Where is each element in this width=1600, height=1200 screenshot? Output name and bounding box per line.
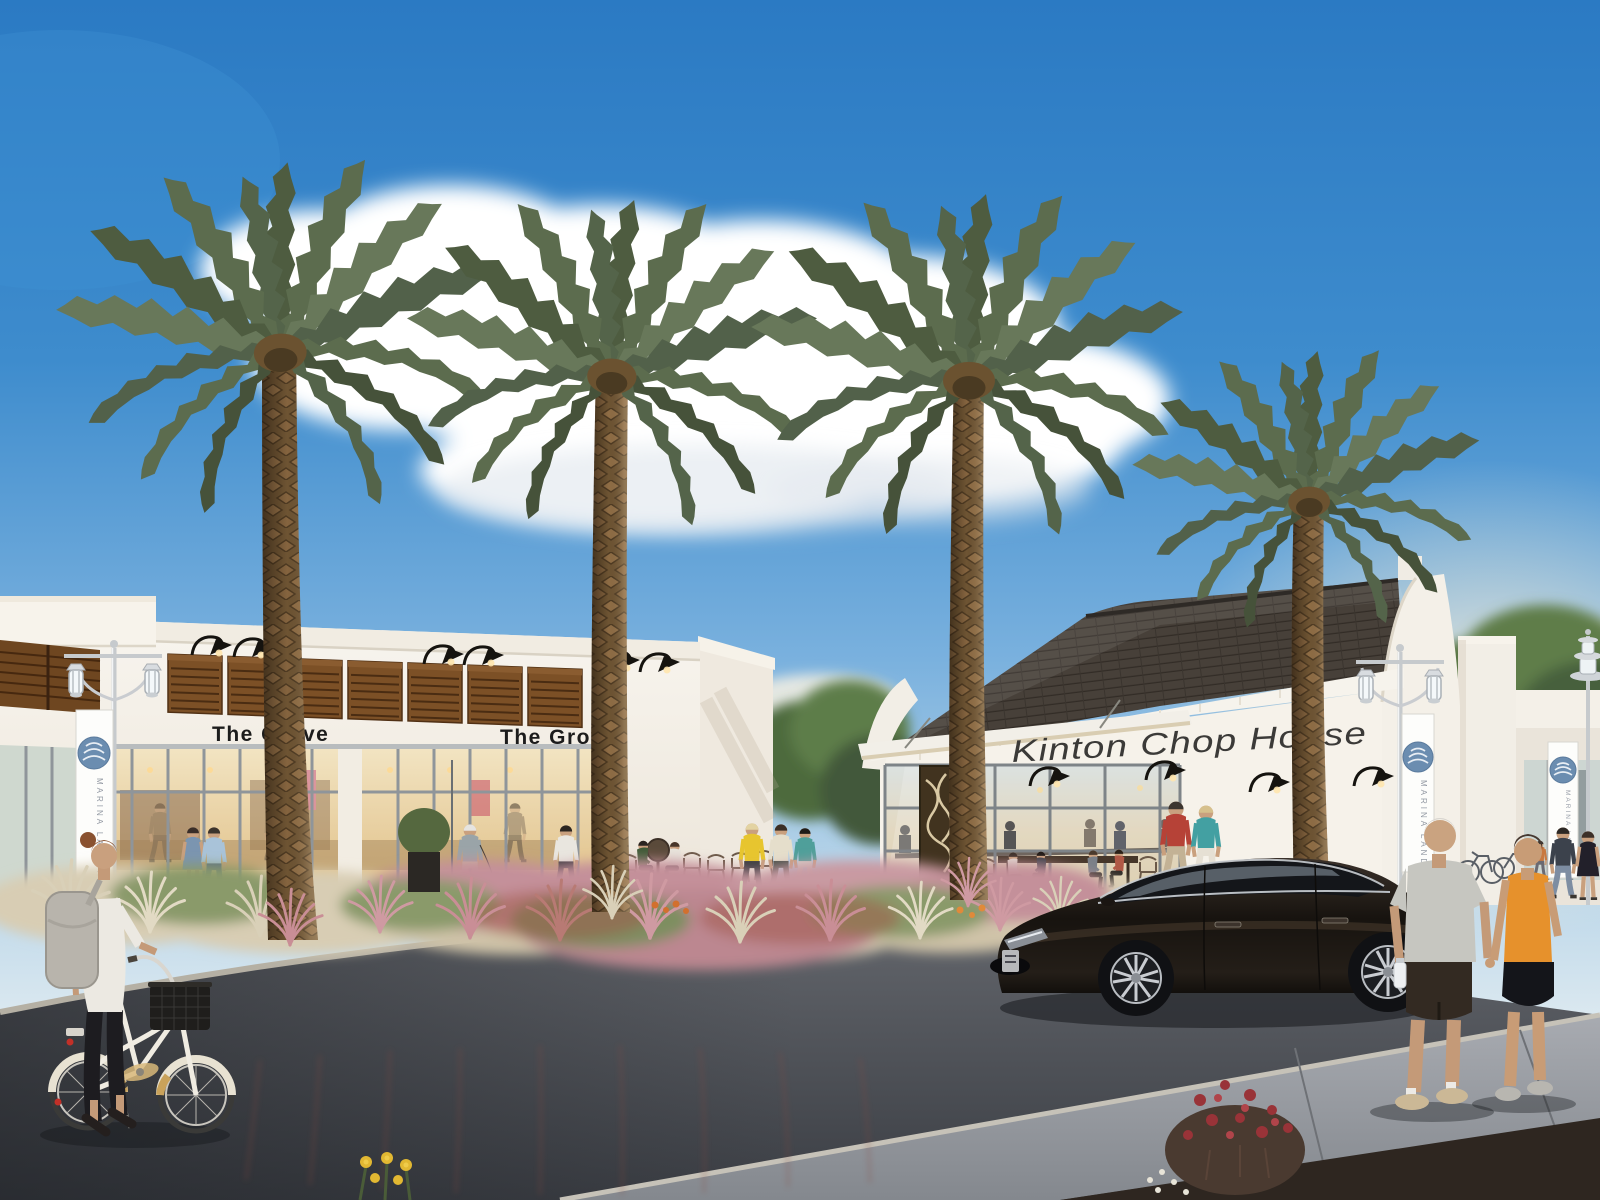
water-bottle bbox=[1394, 962, 1406, 988]
wheel-front bbox=[1098, 940, 1174, 1016]
backpack bbox=[46, 880, 100, 988]
marina-landings-rendering: MARINA LANDINGS bbox=[0, 0, 1600, 1200]
grove-tower bbox=[0, 598, 156, 646]
